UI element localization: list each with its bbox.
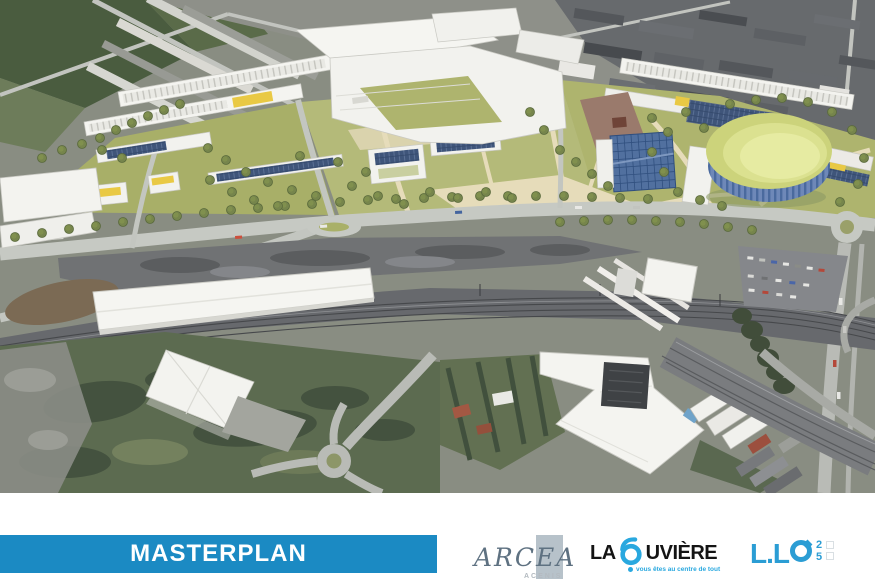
slide-footer: MASTERPLAN ARCEA ACENIS LA UVIÈRE vous ê… <box>0 493 875 584</box>
tagline-dot-icon <box>628 567 633 572</box>
la-louviere-prefix: LA <box>590 543 616 563</box>
masterplan-slide: MASTERPLAN ARCEA ACENIS LA UVIÈRE vous ê… <box>0 0 875 584</box>
llo-digit-top: 2 <box>816 540 822 552</box>
llo-square-top <box>826 541 834 549</box>
arcea-logo: ARCEA ACENIS <box>474 531 594 583</box>
llo-digits: 2 5 <box>816 540 822 563</box>
la-louviere-tagline: vous êtes au centre de tout <box>628 566 720 573</box>
la-louviere-suffix: UVIÈRE <box>646 543 717 563</box>
la-louviere-o-icon <box>618 537 644 567</box>
masterplan-title-bar: MASTERPLAN <box>0 535 437 573</box>
masterplan-render <box>0 0 875 493</box>
llo-logo: L.L 2 5 <box>750 540 834 568</box>
la-louviere-logo: LA UVIÈRE vous êtes au centre de tout <box>590 526 722 581</box>
llo-digit-bottom: 5 <box>816 552 822 564</box>
llo-o-glyph <box>790 540 812 562</box>
la-louviere-wordmark: LA UVIÈRE <box>590 538 717 568</box>
masterplan-title: MASTERPLAN <box>130 542 307 566</box>
llo-squares-icon <box>826 541 834 560</box>
arcea-logo-subtext: ACENIS <box>524 573 562 580</box>
tagline-text: vous êtes au centre de tout <box>636 566 720 573</box>
llo-square-bottom <box>826 552 834 560</box>
arcea-logo-text: ARCEA <box>474 545 576 570</box>
aerial-render-image <box>0 0 875 493</box>
llo-prefix: L.L <box>750 540 789 568</box>
llo-o-tail <box>803 540 813 550</box>
arena <box>706 113 832 208</box>
